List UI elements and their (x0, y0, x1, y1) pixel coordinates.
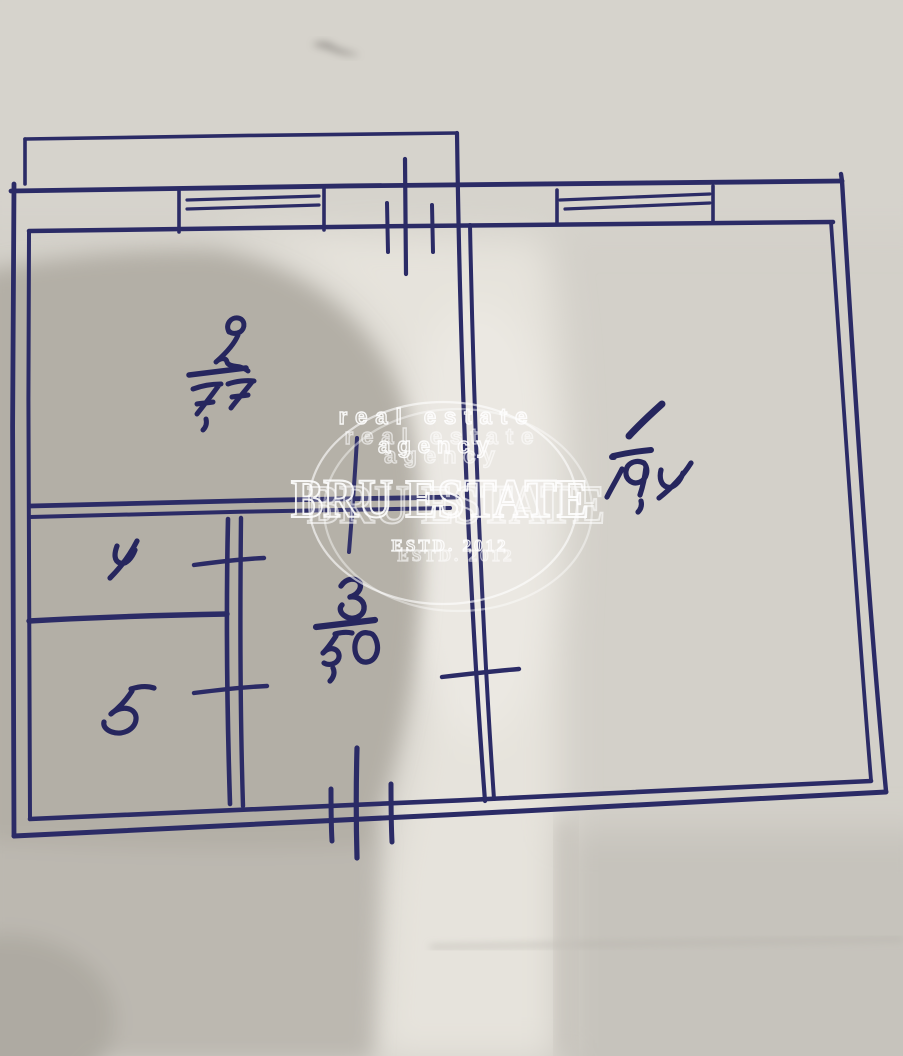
svg-text:BRU ESTATE: BRU ESTATE (307, 475, 605, 536)
svg-text:ESTD. 2012: ESTD. 2012 (398, 546, 515, 565)
svg-text:agency: agency (384, 443, 502, 468)
